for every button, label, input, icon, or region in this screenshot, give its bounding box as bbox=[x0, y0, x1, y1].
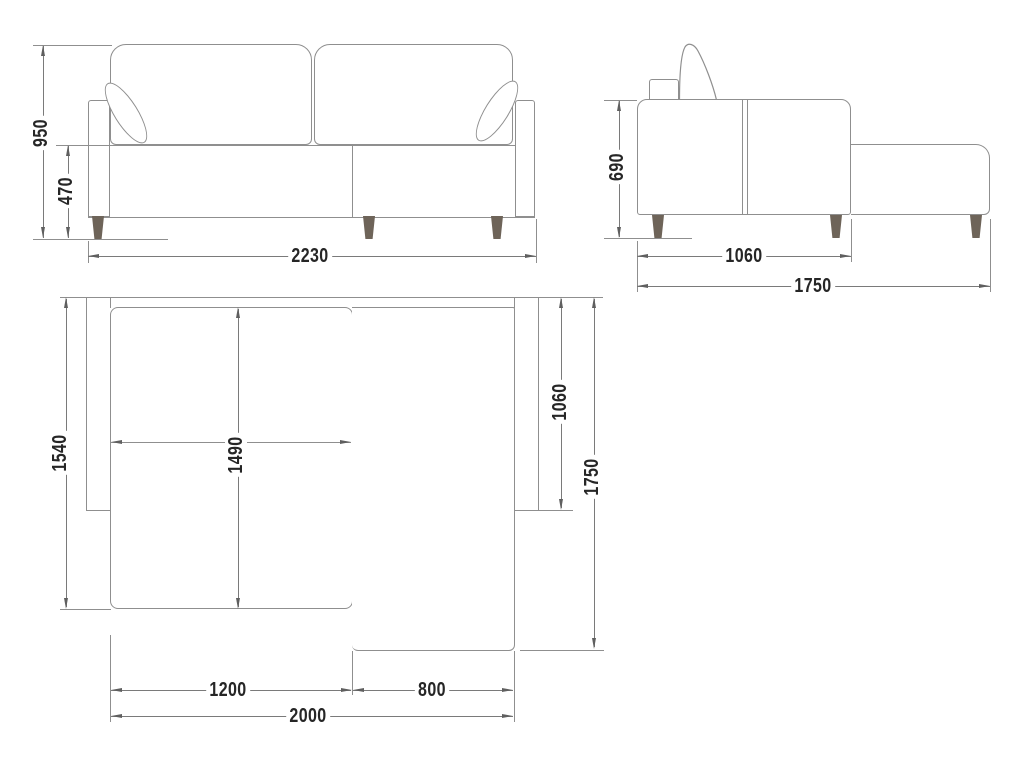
dim-label-plan-bed-depth: 1490 bbox=[225, 433, 247, 477]
plan-ext-bottom-left bbox=[60, 609, 111, 610]
plan-ext-bottom-3 bbox=[514, 651, 515, 722]
plan-armrest-left-outer bbox=[86, 297, 87, 510]
arrow-up-icon bbox=[64, 297, 68, 308]
plan-armrest-right-inner bbox=[514, 297, 515, 308]
plan-ext-bottom-1 bbox=[110, 635, 111, 722]
plan-back-line bbox=[60, 297, 603, 298]
arrow-left-icon bbox=[353, 688, 364, 692]
arrow-left-icon bbox=[111, 688, 122, 692]
plan-armrest-right-bottom bbox=[514, 510, 573, 511]
arrow-right-icon bbox=[340, 440, 351, 444]
arrow-right-icon bbox=[341, 688, 352, 692]
plan-armrest-left-inner bbox=[110, 297, 111, 308]
dim-label-plan-seat-width: 1200 bbox=[206, 679, 250, 701]
arrow-up-icon bbox=[559, 297, 563, 308]
arrow-left-icon bbox=[111, 714, 122, 718]
drawing-sheet: 950 470 2230 690 1060 1750 bbox=[0, 0, 1024, 768]
arrow-up-icon bbox=[592, 297, 596, 308]
plan-ext-chaise-bottom bbox=[520, 650, 604, 651]
plan-armrest-left-bottom bbox=[86, 510, 110, 511]
arrow-down-icon bbox=[64, 598, 68, 609]
arrow-down-icon bbox=[236, 598, 240, 609]
arrow-down-icon bbox=[592, 638, 596, 649]
arrow-right-icon bbox=[502, 714, 513, 718]
dim-label-plan-depth: 1540 bbox=[49, 431, 71, 475]
plan-chaise-section bbox=[352, 307, 515, 651]
arrow-up-icon bbox=[236, 307, 240, 318]
dim-label-plan-inner-width: 2000 bbox=[286, 705, 330, 727]
dim-label-plan-chaise-width: 800 bbox=[415, 679, 449, 701]
plan-view: 1540 1490 1060 1750 1200 800 2000 bbox=[0, 0, 1024, 768]
arrow-left-icon bbox=[111, 440, 122, 444]
dim-label-plan-chaise-depth: 1060 bbox=[549, 380, 571, 424]
arrow-down-icon bbox=[559, 499, 563, 510]
dim-label-plan-total-depth: 1750 bbox=[581, 455, 603, 499]
plan-armrest-right-outer bbox=[538, 297, 539, 510]
arrow-right-icon bbox=[502, 688, 513, 692]
